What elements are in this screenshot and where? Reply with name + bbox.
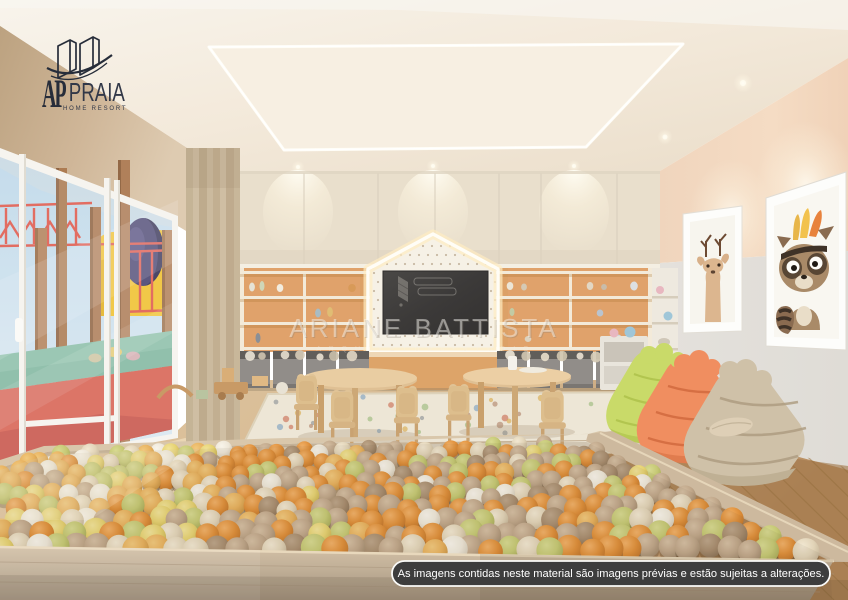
svg-text:HOME RESORT: HOME RESORT [63,106,127,112]
svg-text:ARIANE BATTISTA: ARIANE BATTISTA [289,313,558,343]
svg-text:PRAIA: PRAIA [69,77,126,107]
svg-text:As imagens contidas neste mate: As imagens contidas neste material são i… [398,568,825,580]
svg-text:A R Q U I T E T U R A • S: A R Q U I T E T U R A • S T U D I O [316,346,531,353]
